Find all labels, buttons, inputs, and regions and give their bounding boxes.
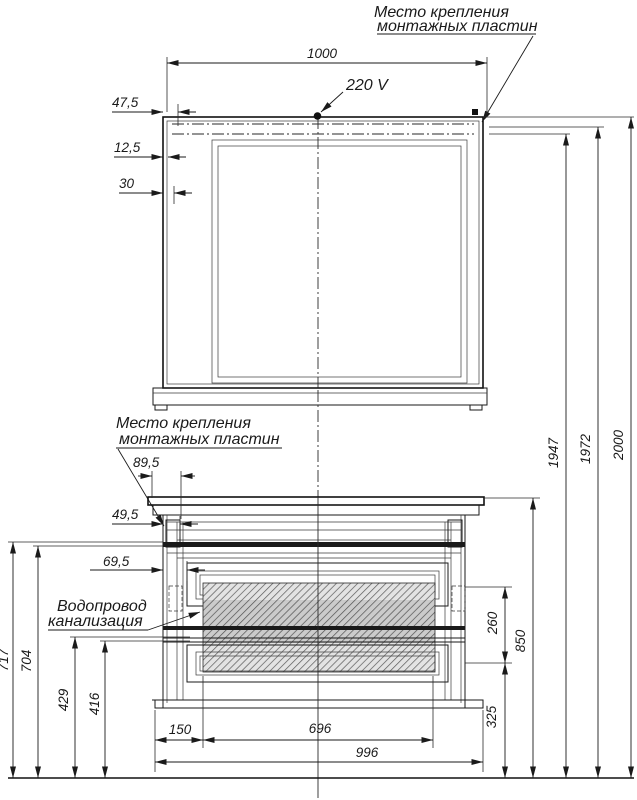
dimensions-bottom: 150 696 996 bbox=[8, 676, 634, 778]
mirror-glass bbox=[218, 146, 461, 377]
cabinet-front-view bbox=[148, 497, 484, 798]
bracket-mark-left bbox=[169, 586, 182, 611]
dimension-label-416: 416 bbox=[87, 692, 102, 715]
power-label: 220 V bbox=[345, 77, 389, 94]
dimension-label-47-5: 47,5 bbox=[112, 95, 139, 110]
annotation-mounting-top-line2: монтажных пластин bbox=[377, 18, 538, 35]
dimension-label-150: 150 bbox=[169, 722, 192, 737]
technical-drawing-page: 220 V Место крепления монтажных пластин … bbox=[0, 0, 637, 800]
plumbing-zone-shade bbox=[203, 600, 435, 643]
annotation-plumbing-line2: канализация bbox=[48, 613, 143, 630]
dimension-label-30: 30 bbox=[119, 176, 135, 191]
dimension-label-717: 717 bbox=[0, 648, 11, 671]
dimension-label-69-5: 69,5 bbox=[103, 554, 130, 569]
dimension-label-49-5: 49,5 bbox=[112, 507, 139, 522]
mounting-plate-mark bbox=[472, 109, 478, 115]
dimension-label-260: 260 bbox=[485, 611, 500, 635]
annotation-mounting-cabinet-line1: Место крепления bbox=[116, 415, 251, 432]
mirror-bevel-outer bbox=[212, 140, 467, 383]
dimension-label-429: 429 bbox=[56, 688, 71, 711]
dimension-label-1947: 1947 bbox=[546, 437, 561, 468]
dimension-label-325: 325 bbox=[484, 705, 499, 728]
mirror-outer-frame bbox=[163, 117, 483, 388]
dimensions-cabinet-top: 89,5 49,5 69,5 bbox=[90, 455, 205, 581]
dimension-label-696: 696 bbox=[309, 721, 332, 736]
sewer-pipe bbox=[163, 626, 465, 630]
mirror-foot-right bbox=[470, 405, 482, 410]
base-strip bbox=[155, 700, 483, 708]
dimension-label-12-5: 12,5 bbox=[114, 140, 141, 155]
water-pipe-upper bbox=[163, 542, 465, 547]
annotation-leader bbox=[482, 36, 533, 122]
power-point-dot bbox=[314, 112, 322, 120]
bracket-mark-right bbox=[452, 586, 465, 611]
dimension-label-89-5: 89,5 bbox=[133, 455, 160, 470]
dimensions-right: 260 325 850 1947 1972 2000 bbox=[465, 117, 634, 778]
power-connection: 220 V bbox=[314, 77, 389, 120]
annotation-mounting-cabinet: Место крепления монтажных пластин bbox=[116, 415, 282, 526]
power-leader-line bbox=[321, 92, 343, 112]
dimension-label-704: 704 bbox=[19, 650, 34, 673]
dimension-label-2000: 2000 bbox=[611, 429, 626, 461]
mirror-frame-inner-line bbox=[167, 121, 479, 384]
dimension-label-1000: 1000 bbox=[307, 46, 338, 61]
dimension-label-850: 850 bbox=[513, 629, 528, 652]
mirror-foot-left bbox=[155, 405, 167, 410]
mirror-sill bbox=[153, 388, 487, 405]
installation-drawing: 220 V Место крепления монтажных пластин … bbox=[0, 0, 637, 800]
dimension-label-1972: 1972 bbox=[578, 433, 593, 464]
annotation-mounting-cabinet-line2: монтажных пластин bbox=[119, 431, 280, 448]
dimensions-left: 717 704 429 416 bbox=[0, 542, 190, 778]
countertop-molding bbox=[153, 505, 479, 515]
dimensions-top: 1000 47,5 12,5 30 bbox=[112, 46, 487, 204]
dimension-label-996: 996 bbox=[356, 745, 379, 760]
countertop-top bbox=[148, 497, 484, 505]
